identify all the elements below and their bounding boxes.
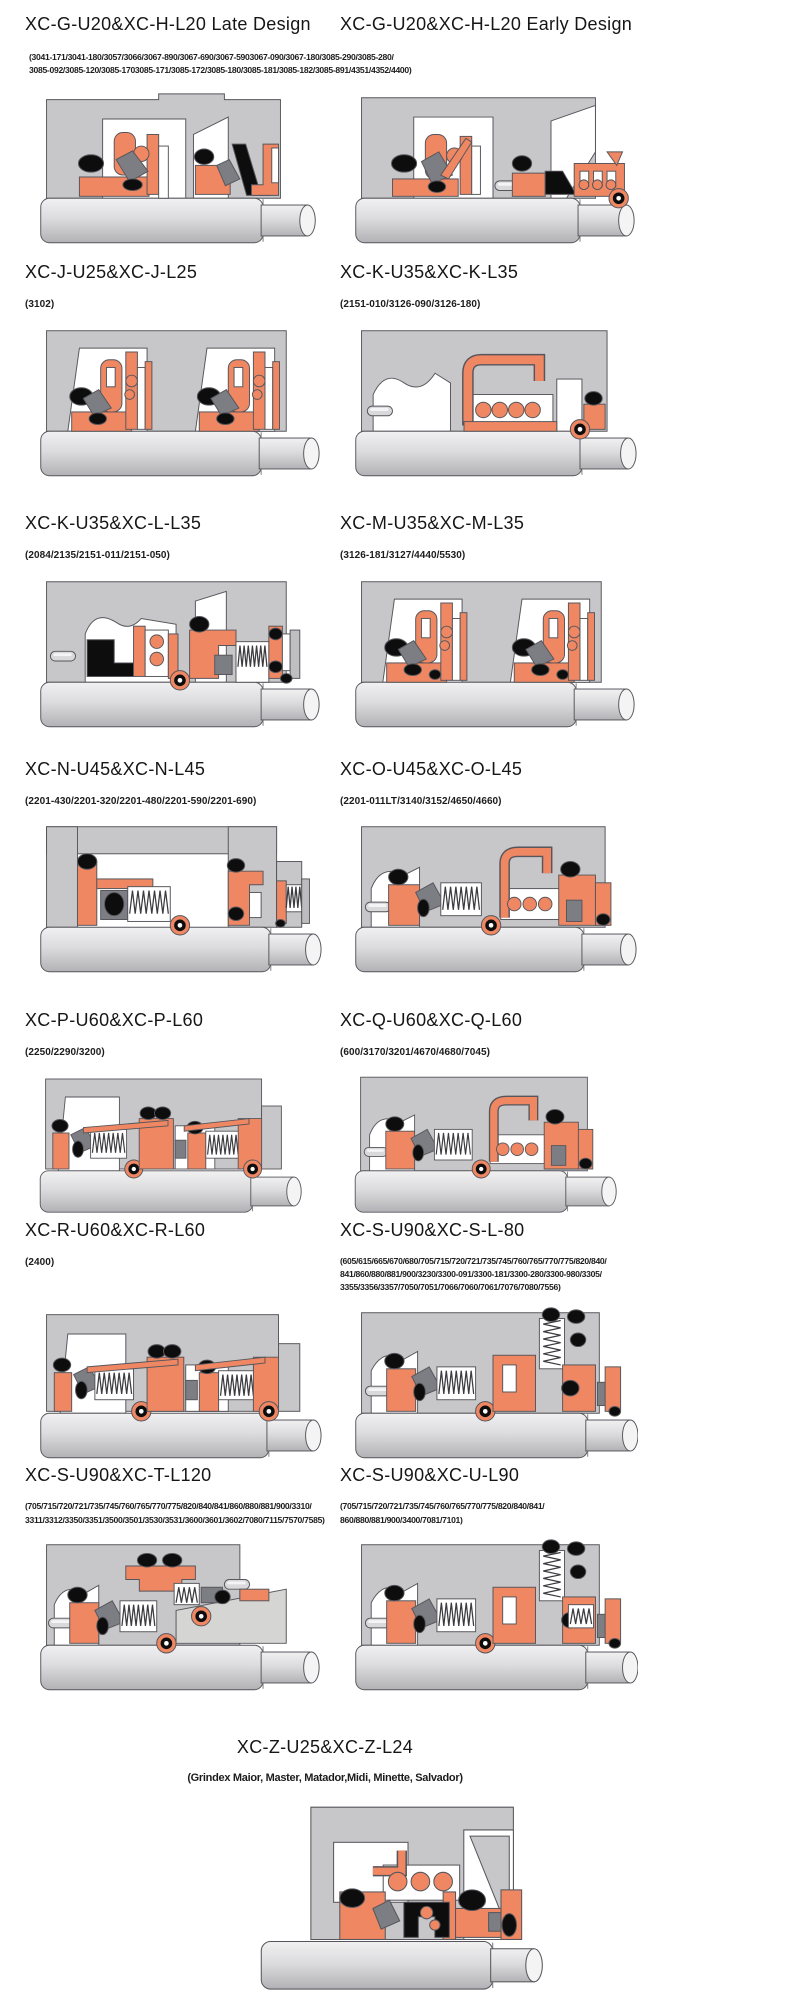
- shaft: [356, 431, 636, 475]
- seal-diagram: [348, 819, 638, 979]
- seal-diagram: [33, 574, 323, 734]
- shaft: [356, 1645, 638, 1689]
- seal-cross-section-svg: [348, 1070, 618, 1219]
- part-numbers: (Grindex Maior, Master, Matador,Midi, Mi…: [65, 1770, 585, 1787]
- seal-diagram: [348, 90, 638, 250]
- part-numbers-line: 860/880/881/900/3400/7081/7101): [340, 1514, 786, 1527]
- part-numbers-line: (705/715/720/721/735/745/760/765/770/775…: [340, 1500, 786, 1513]
- seal-diagram: [33, 1305, 323, 1465]
- part-numbers-line: 3355/3356/3357/7050/7051/7066/7060/7061/…: [340, 1281, 786, 1294]
- part-numbers: (2250/2290/3200): [25, 1045, 340, 1061]
- shaft: [41, 1413, 321, 1457]
- seal-diagram: [348, 323, 638, 483]
- section-title: XC-S-U90&XC-S-L-80: [340, 1220, 786, 1241]
- section-title: XC-Q-U60&XC-Q-L60: [340, 1010, 786, 1031]
- catalog-section-center: XC-Z-U25&XC-Z-L24(Grindex Maior, Master,…: [25, 1737, 786, 1997]
- part-numbers: (2151-010/3126-090/3126-180): [340, 297, 786, 313]
- shaft: [41, 198, 316, 242]
- part-numbers-line: 841/860/880/881/900/3230/3300-091/3300-1…: [340, 1268, 786, 1281]
- catalog-row: XC-J-U25&XC-J-L25XC-K-U35&XC-K-L35(3102)…: [25, 262, 786, 483]
- part-numbers: (705/715/720/721/735/745/760/765/770/775…: [340, 1500, 786, 1527]
- part-numbers: (3102): [25, 297, 340, 313]
- seal-cross-section-svg: [33, 1070, 303, 1219]
- part-numbers-line: (2084/2135/2151-011/2151-050): [25, 548, 340, 564]
- seal-cross-section-svg: [33, 1305, 323, 1465]
- part-numbers-line: (2151-010/3126-090/3126-180): [340, 297, 786, 313]
- part-numbers-line: (605/615/665/670/680/705/715/720/721/735…: [340, 1255, 786, 1268]
- part-numbers-line: (705/715/720/721/735/745/760/765/770/775…: [25, 1500, 340, 1513]
- section-title: XC-K-U35&XC-K-L35: [340, 262, 786, 283]
- part-numbers-line: (2201-430/2201-320/2201-480/2201-590/220…: [25, 794, 340, 810]
- part-numbers-line: (2250/2290/3200): [25, 1045, 340, 1061]
- seal-diagram: [348, 1070, 618, 1219]
- part-numbers-line: (3102): [25, 297, 340, 313]
- part-numbers: (3041-171/3041-180/3057/3066/3067-890/30…: [29, 51, 786, 78]
- seal-cross-section-svg: [348, 1305, 638, 1465]
- part-numbers-line: (3041-171/3041-180/3057/3066/3067-890/30…: [29, 51, 786, 64]
- catalog-row: XC-K-U35&XC-L-L35XC-M-U35&XC-M-L35(2084/…: [25, 513, 786, 734]
- shaft: [41, 1645, 319, 1689]
- part-numbers: (2201-011LT/3140/3152/4650/4660): [340, 794, 786, 810]
- seal-diagram: [33, 1537, 323, 1697]
- catalog-row: XC-S-U90&XC-T-L120XC-S-U90&XC-U-L90(705/…: [25, 1465, 786, 1697]
- seal-diagram: [33, 323, 323, 483]
- shaft: [40, 1171, 301, 1212]
- part-numbers-line: (3126-181/3127/4440/5530): [340, 548, 786, 564]
- seal-cross-section-svg: [33, 1537, 323, 1697]
- seal-diagram: [33, 819, 323, 979]
- seal-cross-section-svg: [348, 323, 638, 483]
- section-title: XC-Z-U25&XC-Z-L24: [65, 1737, 585, 1758]
- part-numbers: (2084/2135/2151-011/2151-050): [25, 548, 340, 564]
- section-title: XC-S-U90&XC-U-L90: [340, 1465, 786, 1486]
- catalog-row: XC-R-U60&XC-R-L60XC-S-U90&XC-S-L-80(2400…: [25, 1220, 786, 1465]
- section-title: XC-M-U35&XC-M-L35: [340, 513, 786, 534]
- section-title: XC-R-U60&XC-R-L60: [25, 1220, 340, 1241]
- seal-diagram: [348, 1537, 638, 1697]
- part-numbers: (705/715/720/721/735/745/760/765/770/775…: [25, 1500, 340, 1527]
- catalog-row: XC-G-U20&XC-H-L20 Late DesignXC-G-U20&XC…: [25, 14, 786, 250]
- seal-cross-section-svg: [33, 90, 323, 250]
- seal-cross-section-svg: [33, 819, 323, 979]
- part-numbers: (2400): [25, 1255, 340, 1271]
- section-title: XC-G-U20&XC-H-L20 Late Design: [25, 14, 340, 35]
- shaft: [356, 198, 634, 242]
- part-numbers-line: (2400): [25, 1255, 340, 1271]
- section-title: XC-S-U90&XC-T-L120: [25, 1465, 340, 1486]
- part-numbers-line: 3085-092/3085-120/3085-1703085-171/3085-…: [29, 64, 786, 77]
- catalog-row: XC-N-U45&XC-N-L45XC-O-U45&XC-O-L45(2201-…: [25, 759, 786, 980]
- seal-cross-section-svg: [33, 323, 323, 483]
- seal-cross-section-svg: [33, 574, 323, 734]
- seal-cross-section-svg: [348, 819, 638, 979]
- section-title: XC-N-U45&XC-N-L45: [25, 759, 340, 780]
- seal-cross-section-svg: [253, 1801, 563, 1997]
- part-numbers-line: (600/3170/3201/4670/4680/7045): [340, 1045, 786, 1061]
- part-numbers: (3126-181/3127/4440/5530): [340, 548, 786, 564]
- shaft: [356, 1413, 638, 1457]
- seal-diagram: [33, 90, 323, 250]
- seal-diagram: [33, 1070, 303, 1219]
- seal-diagram: [348, 1305, 638, 1465]
- section-title: XC-J-U25&XC-J-L25: [25, 262, 340, 283]
- seal-cross-section-svg: [348, 1537, 638, 1697]
- section-title: XC-K-U35&XC-L-L35: [25, 513, 340, 534]
- part-numbers: (600/3170/3201/4670/4680/7045): [340, 1045, 786, 1061]
- section-title: XC-G-U20&XC-H-L20 Early Design: [340, 14, 786, 35]
- shaft: [261, 1942, 542, 1990]
- seal-diagram: [348, 574, 638, 734]
- shaft: [41, 431, 319, 475]
- seal-cross-section-svg: [348, 90, 638, 250]
- section-title: XC-O-U45&XC-O-L45: [340, 759, 786, 780]
- seal-cross-section-svg: [348, 574, 638, 734]
- section-title: XC-P-U60&XC-P-L60: [25, 1010, 340, 1031]
- part-numbers-line: (2201-011LT/3140/3152/4650/4660): [340, 794, 786, 810]
- seal-catalog-page: XC-G-U20&XC-H-L20 Late DesignXC-G-U20&XC…: [0, 0, 796, 1998]
- seal-diagram: [253, 1801, 563, 1997]
- part-numbers: (605/615/665/670/680/705/715/720/721/735…: [340, 1255, 786, 1295]
- shaft: [356, 682, 634, 726]
- catalog-row: XC-P-U60&XC-P-L60XC-Q-U60&XC-Q-L60(2250/…: [25, 1010, 786, 1220]
- part-numbers-line: (Grindex Maior, Master, Matador,Midi, Mi…: [65, 1770, 585, 1787]
- part-numbers-line: 3311/3312/3350/3351/3500/3501/3530/3531/…: [25, 1514, 340, 1527]
- part-numbers: (2201-430/2201-320/2201-480/2201-590/220…: [25, 794, 340, 810]
